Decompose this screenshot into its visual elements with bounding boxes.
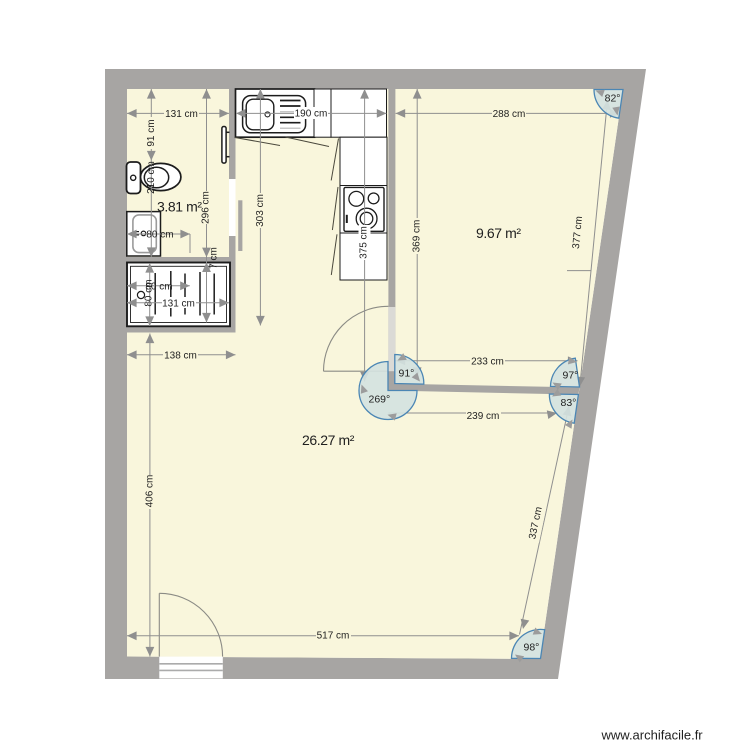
svg-text:131 cm: 131 cm xyxy=(165,109,198,120)
svg-text:303 cm: 303 cm xyxy=(255,194,266,227)
svg-text:138 cm: 138 cm xyxy=(164,351,197,362)
svg-text:80 cm: 80 cm xyxy=(146,230,173,241)
svg-text:239 cm: 239 cm xyxy=(467,411,500,422)
svg-text:517 cm: 517 cm xyxy=(317,630,350,641)
svg-text:82°: 82° xyxy=(605,93,621,105)
svg-text:97°: 97° xyxy=(563,370,579,382)
svg-text:91 cm: 91 cm xyxy=(146,119,157,146)
svg-text:269°: 269° xyxy=(369,394,391,406)
svg-text:288 cm: 288 cm xyxy=(493,109,526,120)
svg-text:83°: 83° xyxy=(561,397,577,409)
svg-text:7 cm: 7 cm xyxy=(209,247,220,269)
svg-text:296 cm: 296 cm xyxy=(201,191,212,224)
svg-text:375 cm: 375 cm xyxy=(359,226,370,259)
svg-text:26.27 m²: 26.27 m² xyxy=(302,432,355,448)
svg-text:406 cm: 406 cm xyxy=(145,475,156,508)
svg-text:91°: 91° xyxy=(399,368,415,380)
svg-text:233 cm: 233 cm xyxy=(471,357,504,368)
svg-text:190 cm: 190 cm xyxy=(295,109,328,120)
svg-text:98°: 98° xyxy=(524,642,540,654)
svg-text:3.81 m²: 3.81 m² xyxy=(157,198,202,214)
svg-text:www.archifacile.fr: www.archifacile.fr xyxy=(601,728,704,743)
svg-text:131 cm: 131 cm xyxy=(162,299,195,310)
svg-text:9.67 m²: 9.67 m² xyxy=(476,225,521,241)
svg-text:210 cm: 210 cm xyxy=(146,161,157,194)
svg-text:369 cm: 369 cm xyxy=(412,220,423,253)
